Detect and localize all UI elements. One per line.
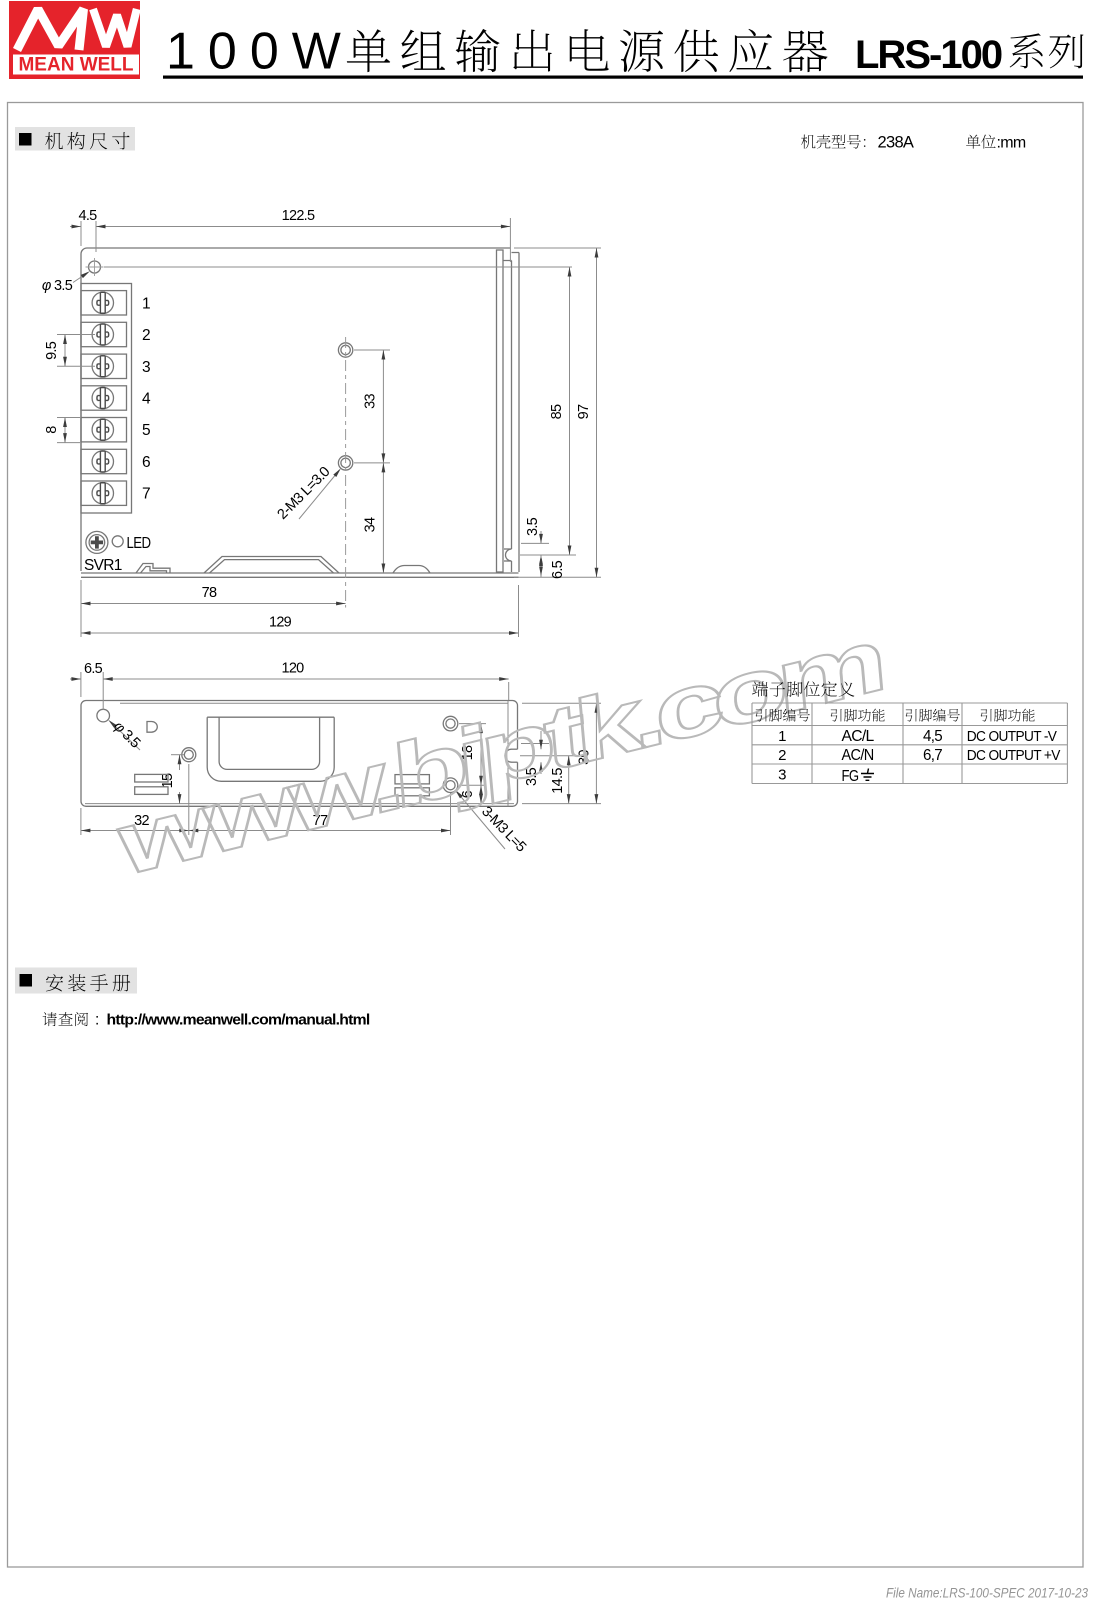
svg-text:SVR1: SVR1	[84, 557, 122, 574]
svg-text:File Name:LRS-100-SPEC 2017-1: File Name:LRS-100-SPEC 2017-10-23	[886, 1585, 1088, 1600]
svg-text:2: 2	[142, 327, 150, 344]
svg-text:4.5: 4.5	[78, 208, 97, 224]
svg-text::mm: :mm	[997, 135, 1026, 152]
svg-text:9.5: 9.5	[44, 341, 60, 360]
svg-text:129: 129	[269, 615, 292, 631]
svg-text:4: 4	[142, 391, 151, 408]
svg-text:6: 6	[142, 454, 150, 471]
svg-text::: :	[95, 1012, 99, 1029]
svg-text:85: 85	[549, 404, 565, 419]
svg-text:6,7: 6,7	[923, 747, 942, 764]
svg-text:238A: 238A	[878, 134, 914, 152]
svg-text:1: 1	[142, 295, 150, 312]
svg-text:AC/N: AC/N	[842, 747, 874, 764]
svg-text:100W: 100W	[166, 22, 354, 80]
svg-text:6.5: 6.5	[550, 560, 566, 579]
svg-text:97: 97	[576, 404, 592, 419]
svg-text:8: 8	[44, 426, 60, 434]
svg-text:2: 2	[778, 747, 786, 764]
svg-text:5: 5	[142, 422, 150, 439]
svg-text:http://www.meanwell.com/manual: http://www.meanwell.com/manual.html	[107, 1012, 371, 1029]
svg-text:78: 78	[202, 585, 217, 601]
svg-text:4,5: 4,5	[923, 728, 942, 745]
svg-text:FG: FG	[842, 768, 859, 785]
svg-text:6.5: 6.5	[84, 661, 103, 677]
svg-text:LED: LED	[127, 535, 151, 552]
svg-text:φ 3.5: φ 3.5	[42, 278, 73, 294]
svg-text:φ 3.5: φ 3.5	[110, 719, 143, 752]
svg-text:DC OUTPUT -V: DC OUTPUT -V	[967, 728, 1057, 745]
svg-text:MEAN WELL: MEAN WELL	[18, 55, 133, 76]
svg-text:1: 1	[778, 728, 786, 745]
svg-text:3: 3	[778, 766, 786, 783]
svg-text:3.5: 3.5	[525, 517, 541, 536]
svg-text:34: 34	[363, 517, 379, 532]
svg-text:120: 120	[281, 661, 304, 677]
svg-text:7: 7	[142, 486, 150, 503]
svg-text:DC OUTPUT +V: DC OUTPUT +V	[967, 747, 1061, 764]
svg-text:LRS-100: LRS-100	[855, 33, 1002, 77]
svg-text:122.5: 122.5	[282, 208, 315, 224]
svg-text:3: 3	[142, 359, 150, 376]
svg-text:33: 33	[363, 394, 379, 409]
svg-text:2-M3 L=3.0: 2-M3 L=3.0	[275, 464, 334, 523]
svg-text:www.bjptk.com: www.bjptk.com	[114, 608, 891, 896]
svg-text:AC/L: AC/L	[842, 728, 875, 745]
